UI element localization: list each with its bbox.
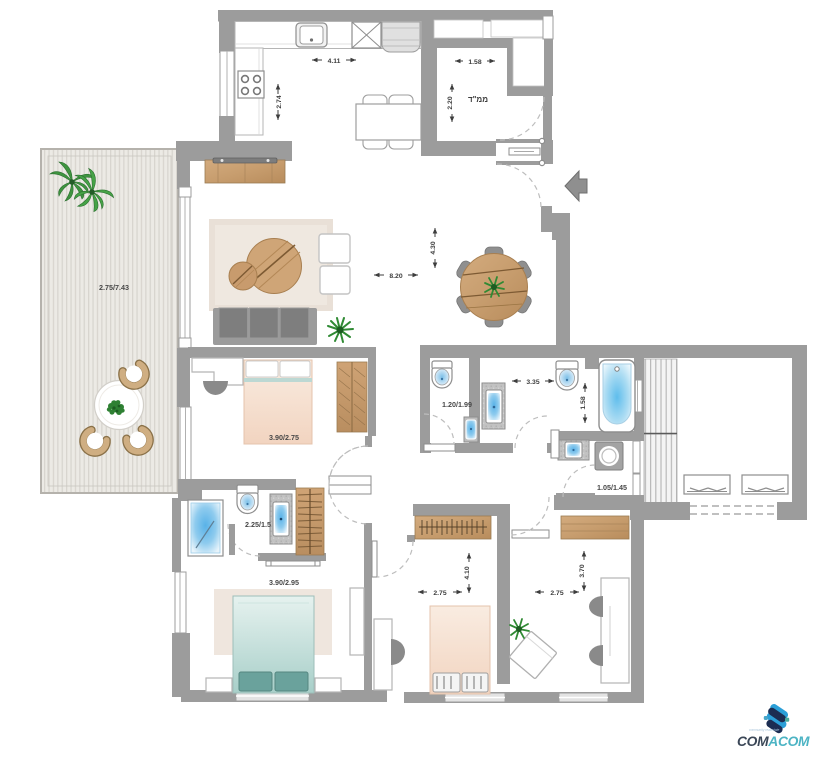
- svg-text:ממ"ד: ממ"ד: [468, 95, 488, 104]
- svg-text:2.74: 2.74: [276, 95, 283, 108]
- svg-text:4.10: 4.10: [464, 566, 471, 579]
- svg-text:2.75: 2.75: [433, 590, 446, 597]
- svg-text:1.58: 1.58: [580, 396, 587, 409]
- svg-text:4.30: 4.30: [430, 241, 437, 254]
- svg-text:1.05/1.45: 1.05/1.45: [597, 483, 627, 492]
- svg-text:4.11: 4.11: [328, 58, 341, 65]
- svg-text:2.75: 2.75: [550, 590, 563, 597]
- svg-text:8.20: 8.20: [389, 273, 402, 280]
- svg-text:2.75/7.43: 2.75/7.43: [99, 283, 129, 292]
- svg-text:COMACOM: COMACOM: [737, 734, 810, 749]
- svg-text:3.35: 3.35: [526, 379, 539, 386]
- svg-text:3.90/2.95: 3.90/2.95: [269, 578, 299, 587]
- svg-text:2.20: 2.20: [447, 96, 454, 109]
- svg-text:2.25/1.5: 2.25/1.5: [245, 520, 271, 529]
- svg-text:3.70: 3.70: [579, 564, 586, 577]
- svg-text:1.20/1.99: 1.20/1.99: [442, 400, 472, 409]
- svg-text:3.90/2.75: 3.90/2.75: [269, 433, 299, 442]
- svg-text:community realestate: community realestate: [749, 728, 780, 732]
- svg-text:1.58: 1.58: [468, 59, 481, 66]
